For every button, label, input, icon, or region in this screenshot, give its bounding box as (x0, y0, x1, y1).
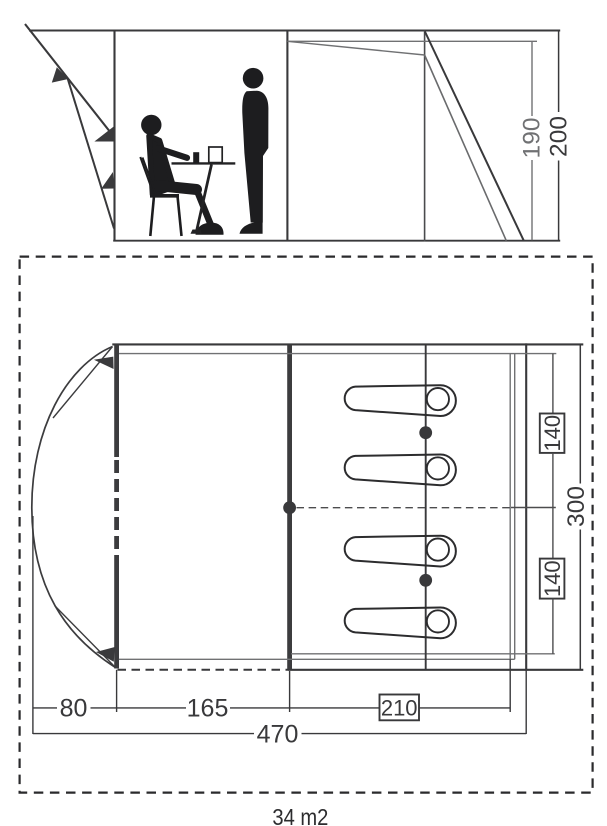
svg-text:140: 140 (540, 415, 565, 452)
svg-text:34 m2: 34 m2 (272, 804, 328, 826)
svg-text:300: 300 (563, 486, 590, 527)
svg-text:470: 470 (257, 720, 299, 748)
svg-text:190: 190 (518, 118, 545, 159)
svg-text:80: 80 (60, 695, 88, 723)
svg-text:165: 165 (187, 695, 229, 723)
svg-text:200: 200 (546, 116, 573, 157)
svg-text:140: 140 (540, 560, 565, 597)
svg-text:210: 210 (381, 696, 418, 721)
